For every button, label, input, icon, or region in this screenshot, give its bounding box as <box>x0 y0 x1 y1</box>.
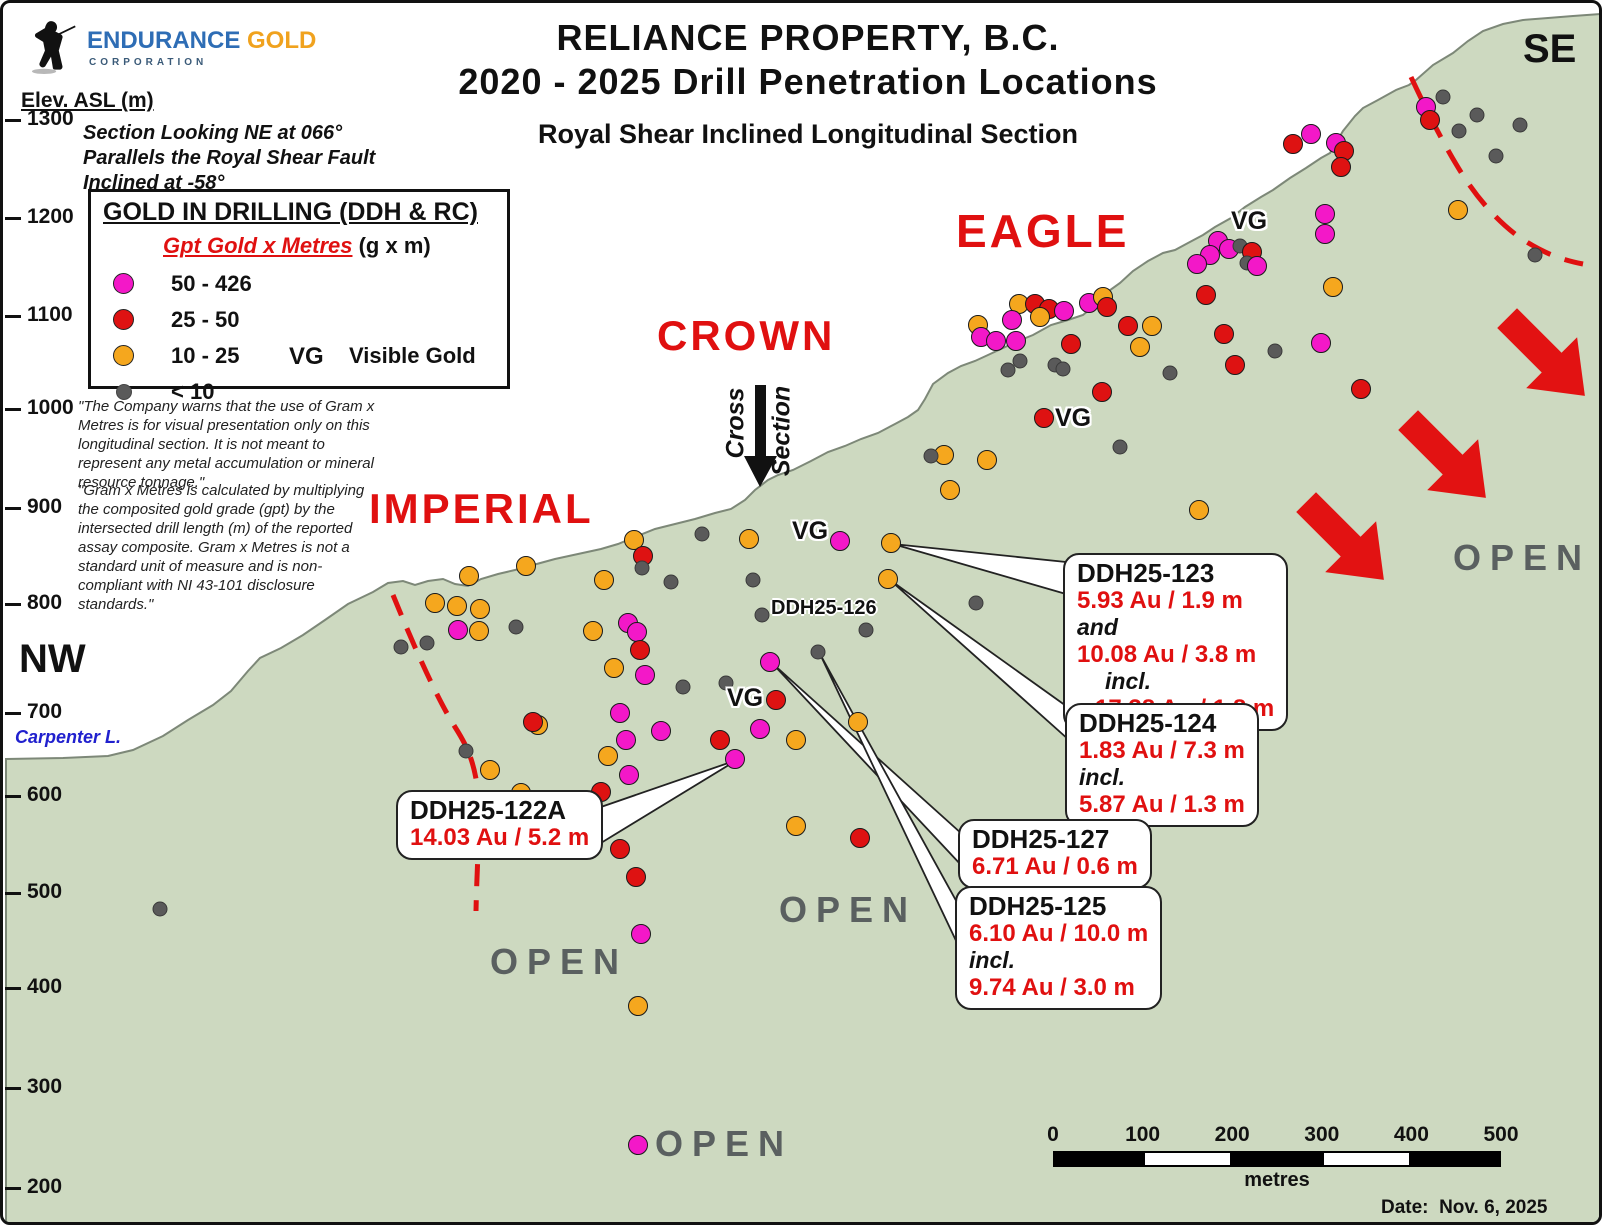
open-label: OPEN <box>1453 537 1591 579</box>
drill-dot-g <box>924 449 939 464</box>
drill-dot-g <box>394 640 409 655</box>
callout-title: DDH25-124 <box>1079 710 1245 737</box>
scalebar-segment <box>1053 1151 1143 1167</box>
drill-dot-o <box>1323 277 1343 297</box>
elevation-tick-mark <box>5 603 21 606</box>
elevation-tick-mark <box>5 987 21 990</box>
scalebar-tick-label: 400 <box>1394 1123 1429 1147</box>
scalebar-unit-label: metres <box>1053 1169 1501 1192</box>
drill-dot-o <box>786 730 806 750</box>
callout-assay-line: 5.93 Au / 1.9 m <box>1077 587 1274 614</box>
drill-dot-g <box>1513 118 1528 133</box>
drillhole-id-label: DDH25-126 <box>771 597 877 620</box>
drill-dot-m <box>628 1135 648 1155</box>
figure-canvas: 1300120011001000900800700600500400300200… <box>0 0 1602 1225</box>
visible-gold-label: VG <box>1231 207 1267 236</box>
scalebar-tick-label: 0 <box>1047 1123 1059 1147</box>
drill-dot-m <box>750 719 770 739</box>
drill-dot-g <box>1452 124 1467 139</box>
elevation-tick-mark <box>5 795 21 798</box>
drill-dot-r <box>1034 408 1054 428</box>
drill-dot-r <box>630 640 650 660</box>
callout-assay-line: incl. <box>969 947 1148 974</box>
drill-dot-r <box>1196 285 1216 305</box>
drill-dot-r <box>850 828 870 848</box>
drill-dot-m <box>760 652 780 672</box>
drill-dot-r <box>1061 334 1081 354</box>
callout-assay-line: 9.74 Au / 3.0 m <box>969 974 1148 1001</box>
drill-dot-m <box>1002 310 1022 330</box>
elevation-tick-label: 1000 <box>27 396 74 420</box>
drill-dot-g <box>1436 90 1451 105</box>
drill-dot-g <box>1113 440 1128 455</box>
drill-dot-o <box>583 621 603 641</box>
drill-dot-m <box>1187 254 1207 274</box>
callout-assay-line: incl. <box>1079 764 1245 791</box>
elevation-tick-mark <box>5 892 21 895</box>
drill-dot-o <box>516 556 536 576</box>
drill-dot-m <box>1247 256 1267 276</box>
callout-title: DDH25-125 <box>969 893 1148 920</box>
callout-ddh25-124: DDH25-1241.83 Au / 7.3 mincl.5.87 Au / 1… <box>1065 703 1259 827</box>
drill-dot-m <box>1301 124 1321 144</box>
drill-dot-g <box>153 902 168 917</box>
drill-dot-g <box>746 573 761 588</box>
elevation-tick-label: 900 <box>27 495 62 519</box>
drill-dot-o <box>425 593 445 613</box>
scalebar-segment <box>1232 1151 1322 1167</box>
scalebar-segment <box>1411 1151 1501 1167</box>
elevation-tick-mark <box>5 1087 21 1090</box>
drill-dot-g <box>420 636 435 651</box>
drill-dot-g <box>1163 366 1178 381</box>
elevation-tick-mark <box>5 408 21 411</box>
scalebar-tick-label: 500 <box>1483 1123 1518 1147</box>
drill-dot-g <box>459 744 474 759</box>
drill-dot-g <box>969 596 984 611</box>
scalebar-tick-label: 100 <box>1125 1123 1160 1147</box>
drill-dot-m <box>651 721 671 741</box>
drill-dot-o <box>469 621 489 641</box>
drill-dot-o <box>1189 500 1209 520</box>
drill-dot-g <box>1001 363 1016 378</box>
drill-dot-g <box>859 623 874 638</box>
scalebar-segment <box>1322 1151 1412 1167</box>
drill-dot-o <box>594 570 614 590</box>
visible-gold-label: VG <box>1055 404 1091 433</box>
drill-dot-o <box>881 533 901 553</box>
drill-dot-r <box>1331 157 1351 177</box>
callout-assay-line: 5.87 Au / 1.3 m <box>1079 791 1245 818</box>
callout-assay-line: 1.83 Au / 7.3 m <box>1079 737 1245 764</box>
callout-assay-line: 6.71 Au / 0.6 m <box>972 853 1138 880</box>
elevation-tick-label: 700 <box>27 700 62 724</box>
drill-dot-m <box>830 531 850 551</box>
drill-dot-m <box>635 665 655 685</box>
drill-dot-m <box>1315 224 1335 244</box>
drill-dot-o <box>470 599 490 619</box>
callout-ddh25-125: DDH25-1256.10 Au / 10.0 mincl.9.74 Au / … <box>955 886 1162 1010</box>
callout-title: DDH25-123 <box>1077 560 1274 587</box>
drill-dot-g <box>635 561 650 576</box>
drill-dot-r <box>1420 110 1440 130</box>
elevation-tick-mark <box>5 119 21 122</box>
drill-dot-o <box>940 480 960 500</box>
drill-dot-o <box>447 596 467 616</box>
drill-dot-o <box>1448 200 1468 220</box>
drill-dot-m <box>1311 333 1331 353</box>
elevation-tick-label: 500 <box>27 880 62 904</box>
elevation-tick-mark <box>5 712 21 715</box>
drill-dot-o <box>786 816 806 836</box>
elevation-tick-label: 400 <box>27 975 62 999</box>
elevation-tick-label: 800 <box>27 591 62 615</box>
drill-dot-r <box>626 867 646 887</box>
drill-dot-g <box>1489 149 1504 164</box>
open-label: OPEN <box>490 941 628 983</box>
drill-dot-r <box>523 712 543 732</box>
drill-dot-r <box>1118 316 1138 336</box>
open-label: OPEN <box>779 889 917 931</box>
zone-label-crown: CROWN <box>657 312 835 360</box>
drill-dot-m <box>725 749 745 769</box>
scalebar-tick-label: 200 <box>1215 1123 1250 1147</box>
callout-ddh25-122a: DDH25-122A14.03 Au / 5.2 m <box>396 790 603 860</box>
drill-dot-r <box>610 839 630 859</box>
drill-dot-o <box>1142 316 1162 336</box>
callout-title: DDH25-127 <box>972 826 1138 853</box>
drill-dot-r <box>1092 382 1112 402</box>
drill-dot-r <box>1214 324 1234 344</box>
callout-assay-line: 6.10 Au / 10.0 m <box>969 920 1148 947</box>
drill-dot-o <box>1130 337 1150 357</box>
generated-annotations: 1300120011001000900800700600500400300200… <box>3 3 1602 1225</box>
drill-dot-o <box>1030 307 1050 327</box>
drill-dot-m <box>619 765 639 785</box>
drill-dot-m <box>1315 204 1335 224</box>
drill-dot-g <box>1470 108 1485 123</box>
drill-dot-o <box>459 566 479 586</box>
drill-dot-m <box>448 620 468 640</box>
drill-dot-m <box>1006 331 1026 351</box>
visible-gold-label: VG <box>727 684 763 713</box>
callout-title: DDH25-122A <box>410 797 589 824</box>
drill-dot-g <box>676 680 691 695</box>
elevation-tick-mark <box>5 507 21 510</box>
drill-dot-m <box>986 331 1006 351</box>
elevation-tick-label: 600 <box>27 783 62 807</box>
drill-dot-g <box>811 645 826 660</box>
drill-dot-m <box>616 730 636 750</box>
elevation-tick-mark <box>5 315 21 318</box>
drill-dot-o <box>604 658 624 678</box>
callout-assay-line: 14.03 Au / 5.2 m <box>410 824 589 851</box>
elevation-tick-label: 300 <box>27 1075 62 1099</box>
callout-assay-line: and <box>1077 614 1274 641</box>
drill-dot-g <box>1528 248 1543 263</box>
elevation-tick-mark <box>5 1187 21 1190</box>
drill-dot-m <box>627 622 647 642</box>
drill-dot-o <box>628 996 648 1016</box>
drill-dot-o <box>878 569 898 589</box>
drill-dot-m <box>610 703 630 723</box>
elevation-tick-label: 1300 <box>27 107 74 131</box>
drill-dot-r <box>1351 379 1371 399</box>
drill-dot-r <box>710 730 730 750</box>
drill-dot-m <box>1054 301 1074 321</box>
drill-dot-o <box>598 746 618 766</box>
drill-dot-g <box>1268 344 1283 359</box>
callout-assay-line: incl. <box>1077 668 1274 695</box>
drill-dot-o <box>977 450 997 470</box>
drill-dot-g <box>509 620 524 635</box>
scalebar-segment <box>1143 1151 1233 1167</box>
elevation-tick-mark <box>5 217 21 220</box>
drill-dot-r <box>766 690 786 710</box>
open-label: OPEN <box>655 1123 793 1165</box>
elevation-tick-label: 1100 <box>27 303 73 327</box>
drill-dot-r <box>1225 355 1245 375</box>
callout-ddh25-127: DDH25-1276.71 Au / 0.6 m <box>958 819 1152 889</box>
drill-dot-g <box>695 527 710 542</box>
zone-label-eagle: EAGLE <box>956 204 1129 258</box>
drill-dot-g <box>664 575 679 590</box>
drill-dot-r <box>1283 134 1303 154</box>
visible-gold-label: VG <box>792 517 828 546</box>
drill-dot-o <box>480 760 500 780</box>
drill-dot-o <box>848 712 868 732</box>
callout-assay-line: 10.08 Au / 3.8 m <box>1077 641 1274 668</box>
zone-label-imperial: IMPERIAL <box>369 485 594 533</box>
scalebar-tick-label: 300 <box>1304 1123 1339 1147</box>
drill-dot-m <box>631 924 651 944</box>
elevation-tick-label: 1200 <box>27 205 74 229</box>
drill-dot-o <box>739 529 759 549</box>
drill-dot-g <box>755 608 770 623</box>
elevation-tick-label: 200 <box>27 1175 62 1199</box>
drill-dot-g <box>1056 362 1071 377</box>
drill-dot-r <box>1097 297 1117 317</box>
